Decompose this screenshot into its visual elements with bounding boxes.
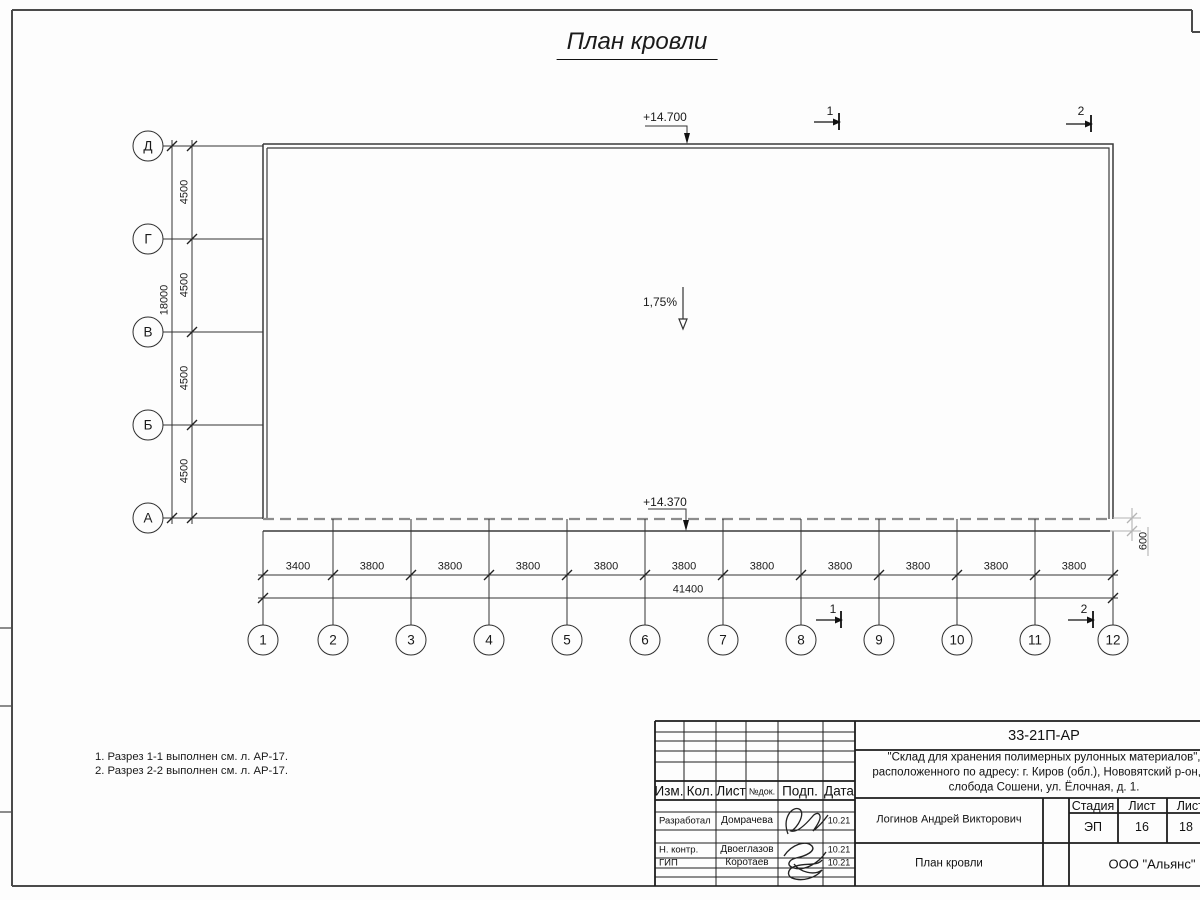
axis-circle-col: 11 — [1020, 625, 1051, 656]
titleblock-doc-number: 33-21П-АР — [1008, 729, 1080, 744]
axis-circle-row: Г — [133, 224, 164, 255]
dim-row-bay: 4500 — [180, 273, 191, 297]
titleblock-drawing-name: План кровли — [915, 858, 983, 870]
axis-col-label: 7 — [719, 633, 727, 648]
dim-col-bay: 3800 — [906, 562, 930, 573]
titleblock-project-line: расположенного по адресу: г. Киров (обл.… — [872, 767, 1200, 779]
section-mark-2-top: 2 — [1078, 105, 1085, 117]
axis-col-label: 3 — [407, 633, 415, 648]
axis-grid-lines — [163, 146, 1113, 625]
axis-circle-row: Б — [133, 410, 164, 441]
dim-col-bay: 3800 — [438, 562, 462, 573]
page-title: План кровли — [557, 28, 718, 60]
dim-col-bay: 3800 — [594, 562, 618, 573]
axis-col-label: 1 — [259, 633, 267, 648]
section-mark-2-bottom: 2 — [1081, 603, 1088, 615]
axis-circle-col: 12 — [1098, 625, 1129, 656]
section-mark-1-top: 1 — [827, 105, 834, 117]
axis-col-label: 10 — [949, 633, 964, 648]
section-mark-1-bottom: 1 — [830, 603, 837, 615]
axis-col-label: 9 — [875, 633, 883, 648]
axis-col-label: 12 — [1105, 633, 1120, 648]
slope-arrow — [679, 287, 687, 329]
dim-row-total: 18000 — [160, 285, 171, 316]
titleblock-project-line: слобода Сошени, ул. Ёлочная, д. 1. — [949, 782, 1140, 794]
titleblock-role: ГИП — [659, 858, 678, 868]
titleblock-project-line: "Склад для хранения полимерных рулонных … — [888, 752, 1200, 764]
note-line: 2. Разрез 2-2 выполнен см. л. АР-17. — [95, 765, 288, 779]
slope-label: 1,75% — [643, 296, 677, 308]
axis-circle-col: 3 — [396, 625, 427, 656]
titleblock-name: Коротаев — [725, 858, 768, 868]
titleblock-col-kol: Кол. — [687, 784, 714, 798]
dim-col-bay: 3800 — [516, 562, 540, 573]
titleblock-col-doc: №док. — [749, 788, 775, 797]
dim-eave-offset: 600 — [1139, 532, 1150, 550]
axis-circle-col: 7 — [708, 625, 739, 656]
axis-circle-col: 6 — [630, 625, 661, 656]
elevation-mark-bottom: +14.370 — [643, 496, 687, 508]
titleblock-col-izm: Изм. — [655, 784, 684, 798]
axis-row-label: Д — [143, 139, 152, 154]
axis-circle-col: 4 — [474, 625, 505, 656]
dim-col-bay: 3400 — [286, 562, 310, 573]
titleblock-stage-value: ЭП — [1084, 821, 1102, 834]
dim-col-bay: 3800 — [360, 562, 384, 573]
axis-circle-col: 9 — [864, 625, 895, 656]
titleblock-sheets-label: Листов — [1177, 800, 1200, 813]
signature-chief-icon — [784, 843, 826, 879]
titleblock-approved-by: Логинов Андрей Викторович — [876, 815, 1021, 826]
note-line: 1. Разрез 1-1 выполнен см. л. АР-17. — [95, 751, 288, 765]
titleblock-col-sign: Подп. — [782, 784, 818, 798]
axis-circle-col: 10 — [942, 625, 973, 656]
axis-row-label: Б — [144, 418, 153, 433]
axis-row-label: В — [143, 325, 152, 340]
axis-row-label: А — [143, 511, 152, 526]
elevation-leader-top — [645, 126, 690, 144]
dim-col-bay: 3800 — [984, 562, 1008, 573]
dim-col-bay: 3800 — [828, 562, 852, 573]
drawing-notes: 1. Разрез 1-1 выполнен см. л. АР-17. 2. … — [95, 751, 288, 778]
titleblock-date: 10.21 — [828, 846, 851, 855]
titleblock-sheets-value: 18 — [1179, 821, 1193, 834]
axis-col-label: 2 — [329, 633, 337, 648]
axis-circle-row: А — [133, 503, 164, 534]
titleblock-organization: ООО "Альянс" — [1109, 858, 1196, 871]
titleblock-name: Двоеглазов — [720, 845, 773, 855]
axis-col-label: 5 — [563, 633, 571, 648]
titleblock-role: Н. контр. — [659, 845, 698, 855]
titleblock-role: Разработал — [659, 816, 711, 826]
drawing-sheet: План кровли +14.700 +14.370 1,75% 1 2 1 … — [0, 0, 1200, 900]
axis-col-label: 4 — [485, 633, 493, 648]
titleblock-date: 10.21 — [828, 859, 851, 868]
axis-circle-col: 5 — [552, 625, 583, 656]
titleblock-col-list: Лист — [716, 784, 745, 798]
axis-row-label: Г — [144, 232, 151, 247]
elevation-mark-top: +14.700 — [643, 111, 687, 123]
dim-col-total: 41400 — [673, 585, 704, 596]
section-marks — [814, 113, 1095, 628]
titleblock-sheet-value: 16 — [1135, 821, 1149, 834]
dim-col-bay: 3800 — [750, 562, 774, 573]
dim-row-bay: 4500 — [180, 180, 191, 204]
titleblock-stage-label: Стадия — [1072, 800, 1115, 813]
titleblock-name: Домрачева — [721, 816, 773, 826]
axis-circle-col: 2 — [318, 625, 349, 656]
axis-col-label: 6 — [641, 633, 649, 648]
titleblock-date: 10.21 — [828, 817, 851, 826]
axis-col-label: 8 — [797, 633, 805, 648]
dim-col-bay: 3800 — [1062, 562, 1086, 573]
axis-circle-col: 1 — [248, 625, 279, 656]
dimension-ticks — [167, 141, 1118, 603]
dim-row-bay: 4500 — [180, 459, 191, 483]
titleblock-sheet-label: Лист — [1128, 800, 1155, 813]
titleblock-col-date: Дата — [824, 784, 854, 798]
axis-circle-row: Д — [133, 131, 164, 162]
dim-row-bay: 4500 — [180, 366, 191, 390]
axis-col-label: 11 — [1028, 633, 1042, 648]
axis-circle-row: В — [133, 317, 164, 348]
building-outline — [263, 144, 1113, 531]
axis-circle-col: 8 — [786, 625, 817, 656]
dim-col-bay: 3800 — [672, 562, 696, 573]
